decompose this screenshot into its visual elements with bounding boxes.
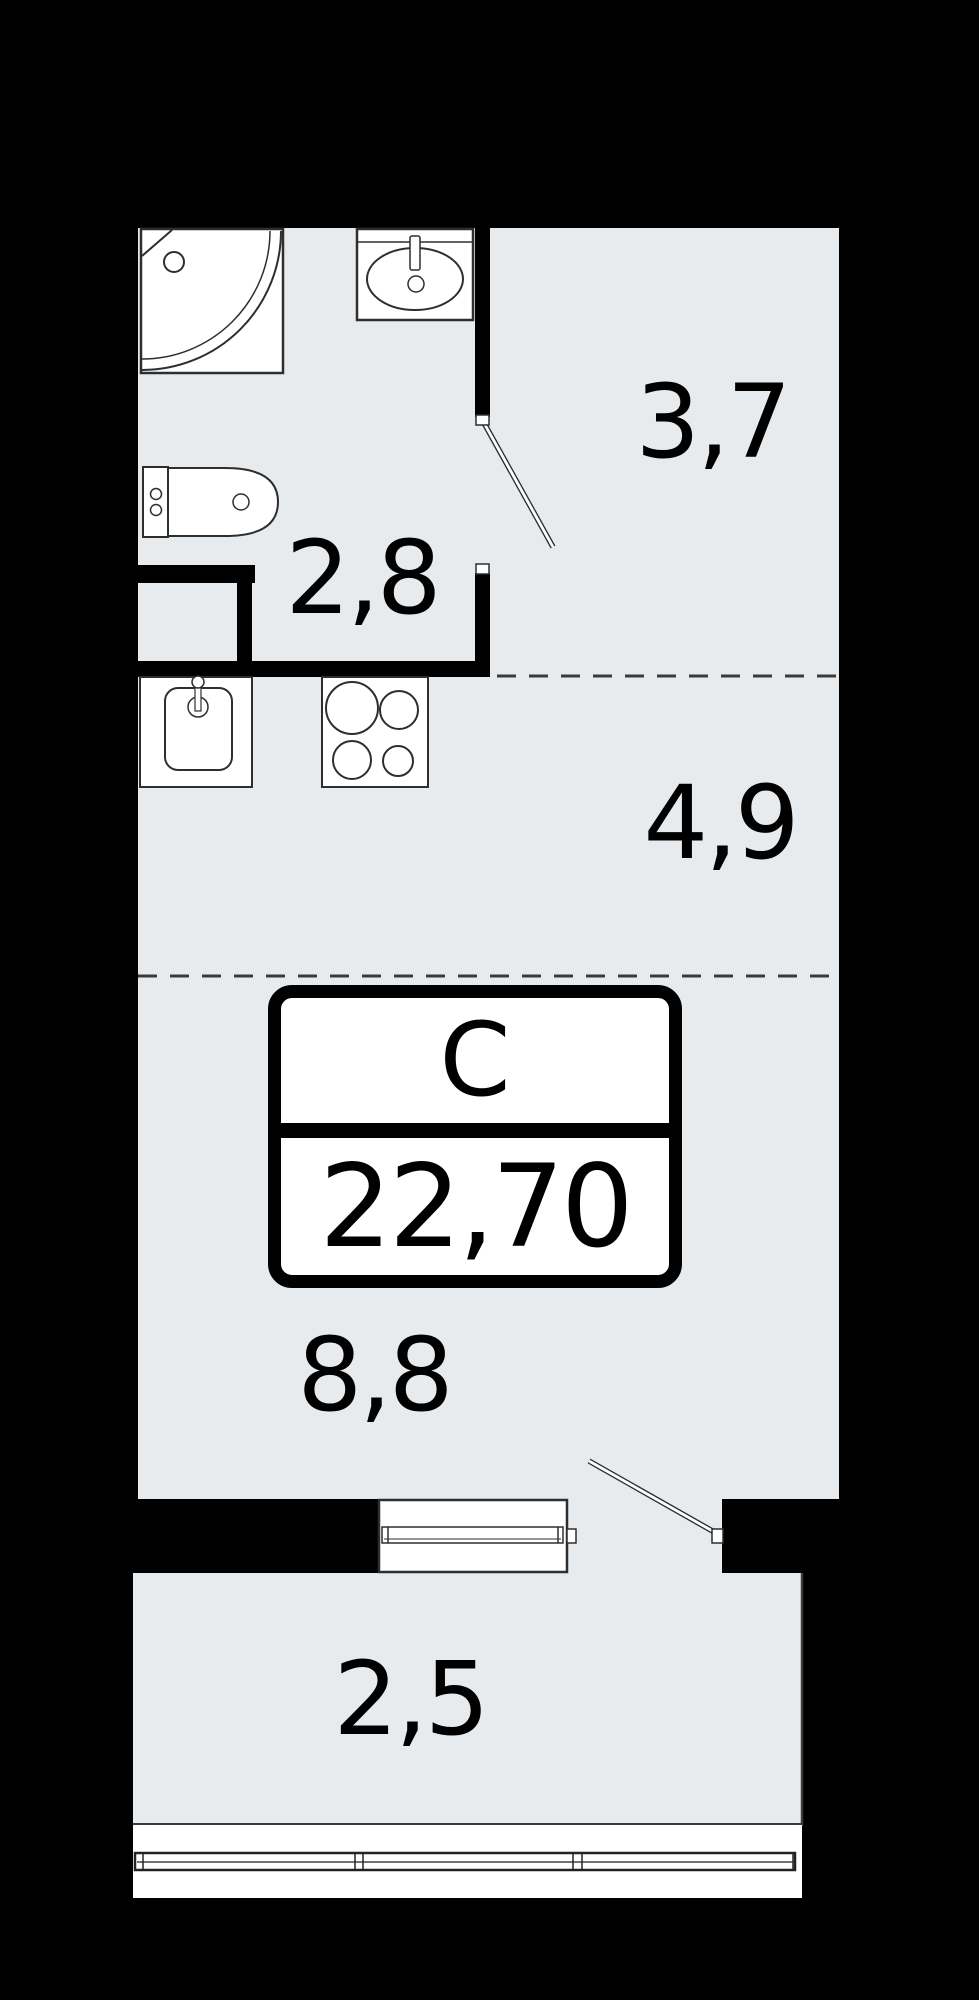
- bathroom-wall-right-upper: [475, 228, 490, 417]
- washbasin-icon: [357, 229, 473, 320]
- corner-shower-icon: [141, 229, 283, 373]
- bathroom-wall-bottom: [138, 661, 490, 677]
- washbasin-faucet: [410, 236, 420, 270]
- window-sash: [382, 1527, 563, 1543]
- apartment-type-label: С: [281, 998, 669, 1123]
- shaft-wall-right: [237, 583, 252, 661]
- floor-plan: 2,8 3,7 4,9 8,8 2,5 С 22,70: [0, 0, 979, 2000]
- stamp-divider: [281, 1123, 669, 1138]
- shower-drain: [164, 252, 184, 272]
- kitchen-area-label: 4,9: [643, 773, 796, 875]
- hallway-area-label: 3,7: [635, 372, 788, 474]
- washbasin-drain: [408, 276, 424, 292]
- apartment-stamp: С 22,70: [268, 985, 682, 1288]
- balcony-window-icon: [379, 1500, 576, 1572]
- toilet-icon: [143, 467, 278, 537]
- balcony-area-label: 2,5: [333, 1649, 486, 1751]
- balcony-railing-icon: [133, 1825, 802, 1898]
- toilet-tank: [143, 467, 168, 537]
- window-handle: [567, 1529, 576, 1543]
- bathroom-wall-right-lower: [475, 573, 490, 661]
- bathroom-area-label: 2,8: [285, 528, 438, 630]
- kitchen-sink-icon: [140, 676, 252, 787]
- bathroom-door-jamb: [476, 564, 489, 574]
- apartment-total-area: 22,70: [281, 1138, 669, 1275]
- bottom-wall-right: [722, 1499, 839, 1573]
- balcony-door-opening: [567, 1499, 722, 1573]
- balcony-door-hinge: [712, 1529, 723, 1543]
- cooktop-icon: [322, 677, 428, 787]
- bathroom-door-hinge: [476, 415, 489, 425]
- living-room-area-label: 8,8: [297, 1325, 450, 1427]
- bottom-wall-left: [138, 1499, 379, 1573]
- shaft-wall-top: [138, 565, 255, 583]
